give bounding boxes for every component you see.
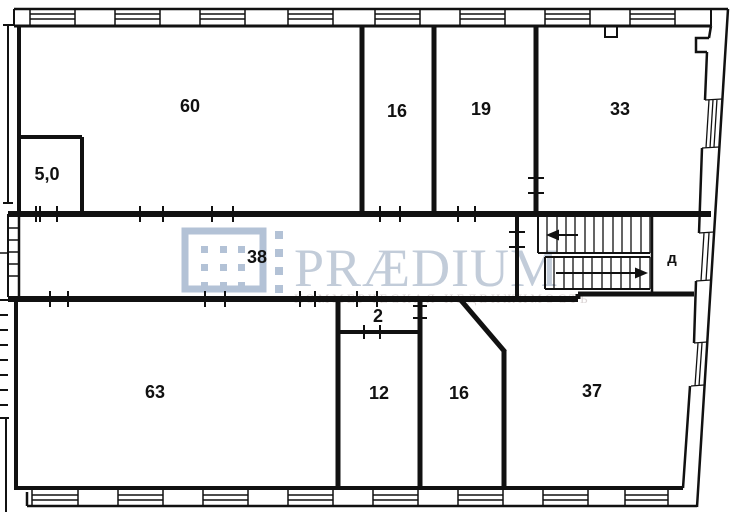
top-window-band: [14, 9, 728, 26]
adjacent-boundary-ticks: [0, 300, 8, 405]
bottom-window-band: [16, 488, 697, 506]
room-label-63: 63: [145, 382, 165, 402]
room-label-5-0: 5,0: [34, 164, 59, 184]
room-label-2: 2: [373, 306, 383, 326]
left-wall: [0, 25, 19, 512]
room-label-37: 37: [582, 381, 602, 401]
right-wall: [683, 9, 728, 507]
floor-plan-page: PRÆDIUM КОММЕРЧЕСКАЯ НЕДВИЖИМОСТЬ: [0, 0, 745, 523]
room-label-16-top: 16: [387, 101, 407, 121]
room-label-d: д: [667, 250, 677, 267]
room-label-33: 33: [610, 99, 630, 119]
room-label-12: 12: [369, 383, 389, 403]
room-label-60: 60: [180, 96, 200, 116]
room-label-19: 19: [471, 99, 491, 119]
left-wall-window-icon: [0, 228, 19, 276]
watermark-logo-dots-icon: [201, 246, 245, 289]
wall-notch: [605, 27, 617, 37]
room-label-38: 38: [247, 247, 267, 267]
floor-plan-drawing: PRÆDIUM КОММЕРЧЕСКАЯ НЕДВИЖИМОСТЬ: [0, 0, 745, 523]
room-label-16-bottom: 16: [449, 383, 469, 403]
watermark: PRÆDIUM КОММЕРЧЕСКАЯ НЕДВИЖИМОСТЬ: [185, 231, 591, 306]
watermark-colon-dots-icon: [275, 231, 283, 293]
